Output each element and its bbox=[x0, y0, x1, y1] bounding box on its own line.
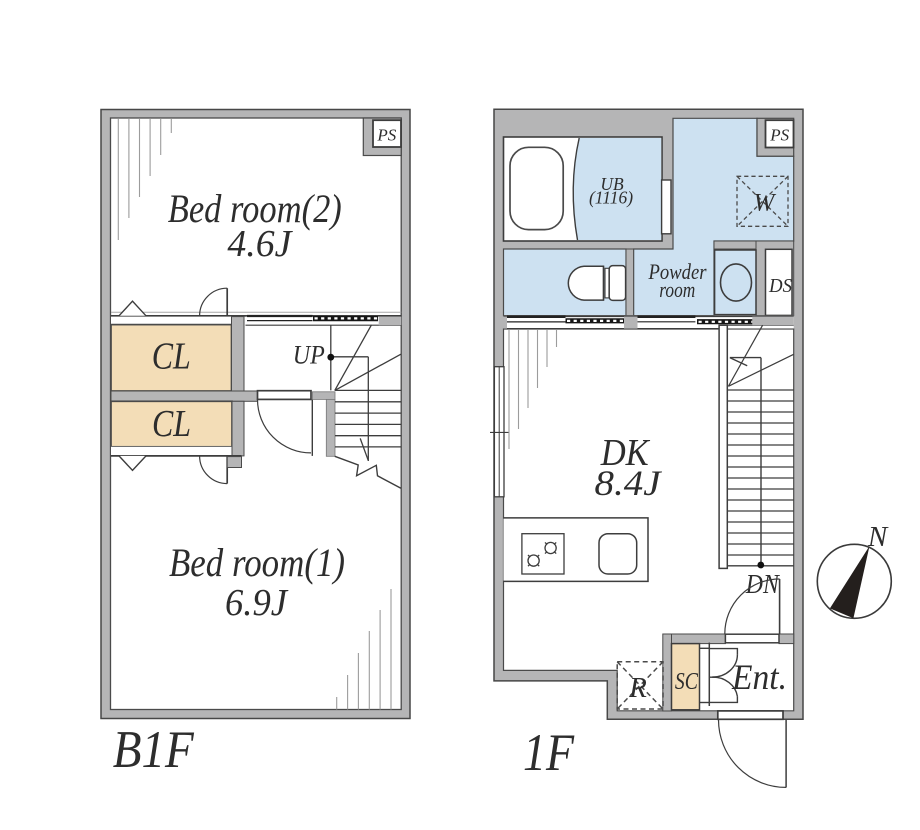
svg-text:CL: CL bbox=[152, 336, 191, 378]
svg-text:4.6J: 4.6J bbox=[227, 223, 293, 265]
svg-text:N: N bbox=[867, 521, 889, 553]
svg-text:UP: UP bbox=[293, 341, 325, 370]
svg-text:(1116): (1116) bbox=[589, 188, 633, 208]
svg-text:W: W bbox=[753, 190, 776, 217]
svg-text:8.4J: 8.4J bbox=[595, 463, 663, 503]
svg-text:PS: PS bbox=[769, 126, 789, 145]
svg-text:DS: DS bbox=[768, 275, 792, 297]
svg-text:SC: SC bbox=[675, 669, 699, 695]
svg-text:Bed room(1): Bed room(1) bbox=[169, 540, 345, 585]
svg-text:PS: PS bbox=[376, 126, 396, 145]
svg-text:DN: DN bbox=[745, 569, 781, 599]
svg-text:CL: CL bbox=[152, 403, 191, 445]
svg-text:Ent.: Ent. bbox=[731, 657, 787, 697]
svg-text:6.9J: 6.9J bbox=[225, 582, 289, 624]
svg-text:room: room bbox=[659, 277, 695, 302]
svg-text:B1F: B1F bbox=[113, 721, 195, 779]
svg-text:1F: 1F bbox=[523, 724, 575, 782]
svg-text:R: R bbox=[628, 672, 647, 704]
